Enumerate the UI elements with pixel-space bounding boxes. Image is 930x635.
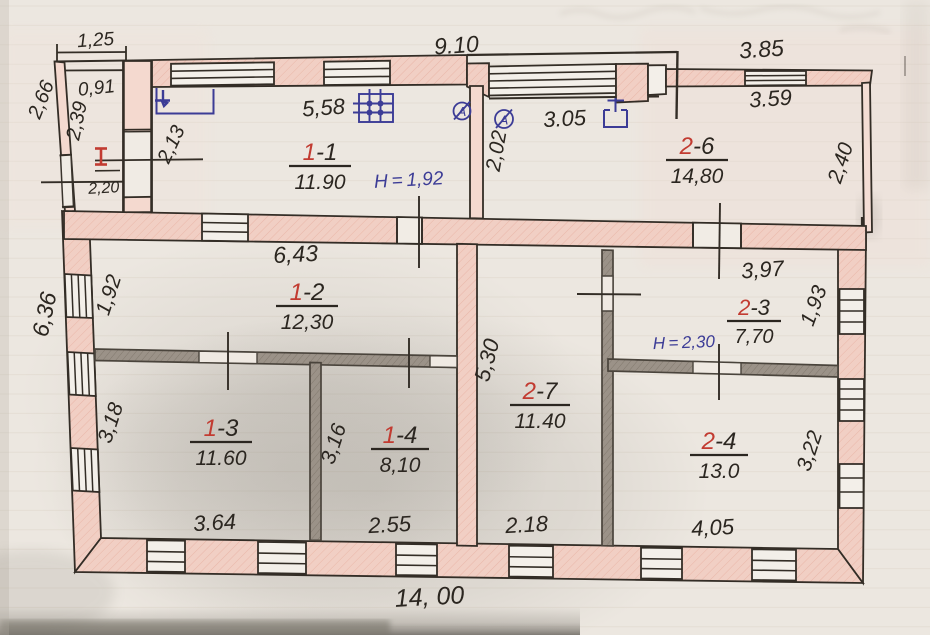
svg-text:3.05: 3.05 xyxy=(543,105,588,132)
svg-text:2.55: 2.55 xyxy=(367,511,413,538)
svg-text:14,80: 14,80 xyxy=(671,165,724,188)
svg-text:2-7: 2-7 xyxy=(522,378,559,405)
svg-text:1-4: 1-4 xyxy=(383,422,418,449)
svg-text:11.90: 11.90 xyxy=(295,171,346,194)
svg-text:1-2: 1-2 xyxy=(290,279,325,306)
svg-text:11.40: 11.40 xyxy=(515,410,566,433)
svg-text:3,97: 3,97 xyxy=(740,256,785,284)
svg-text:6,43: 6,43 xyxy=(273,240,319,268)
svg-text:4,05: 4,05 xyxy=(691,514,736,541)
svg-text:H = 1,92: H = 1,92 xyxy=(374,168,445,193)
svg-text:7,70: 7,70 xyxy=(735,326,774,348)
svg-text:14, 00: 14, 00 xyxy=(394,581,465,613)
svg-text:3.59: 3.59 xyxy=(748,85,792,113)
svg-text:2-6: 2-6 xyxy=(679,133,715,160)
svg-text:2-3: 2-3 xyxy=(737,295,771,320)
svg-text:11.60: 11.60 xyxy=(196,447,247,470)
svg-text:1,25: 1,25 xyxy=(76,29,115,53)
svg-text:9.10: 9.10 xyxy=(433,30,480,59)
svg-text:13.0: 13.0 xyxy=(699,460,740,483)
svg-text:A: A xyxy=(457,105,466,119)
svg-text:1-1: 1-1 xyxy=(303,139,338,166)
svg-text:2.18: 2.18 xyxy=(504,511,550,538)
svg-text:8,10: 8,10 xyxy=(380,454,421,477)
svg-text:1-3: 1-3 xyxy=(204,415,239,442)
svg-text:0,91: 0,91 xyxy=(77,76,116,101)
svg-text:3.85: 3.85 xyxy=(738,34,785,63)
svg-text:3.64: 3.64 xyxy=(193,509,237,536)
svg-text:2,20: 2,20 xyxy=(87,179,120,198)
svg-text:5,58: 5,58 xyxy=(301,94,346,122)
svg-text:A: A xyxy=(499,113,509,128)
svg-text:H = 2,30: H = 2,30 xyxy=(652,332,715,353)
svg-text:2-4: 2-4 xyxy=(701,428,737,455)
svg-text:12,30: 12,30 xyxy=(281,311,334,334)
